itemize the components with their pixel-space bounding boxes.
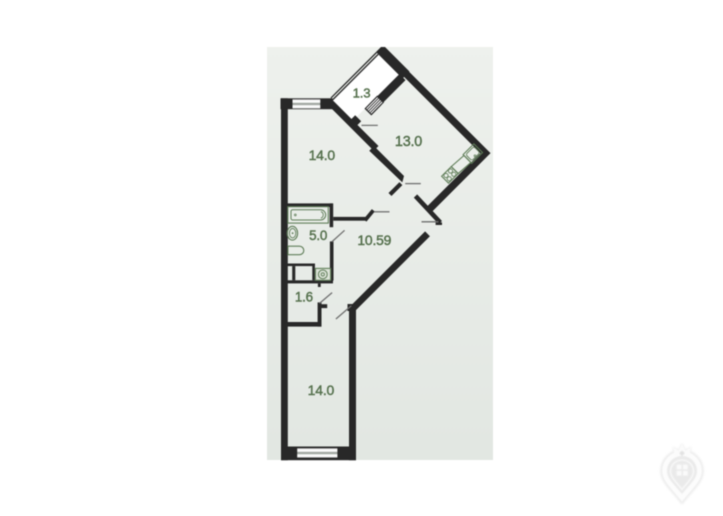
svg-text:5.0: 5.0 — [309, 228, 327, 243]
svg-text:14.0: 14.0 — [308, 382, 335, 398]
svg-text:13.0: 13.0 — [395, 134, 422, 150]
svg-text:1.6: 1.6 — [295, 290, 313, 305]
svg-text:14.0: 14.0 — [309, 147, 336, 163]
svg-text:1.3: 1.3 — [353, 86, 371, 101]
svg-text:10.59: 10.59 — [357, 232, 391, 248]
